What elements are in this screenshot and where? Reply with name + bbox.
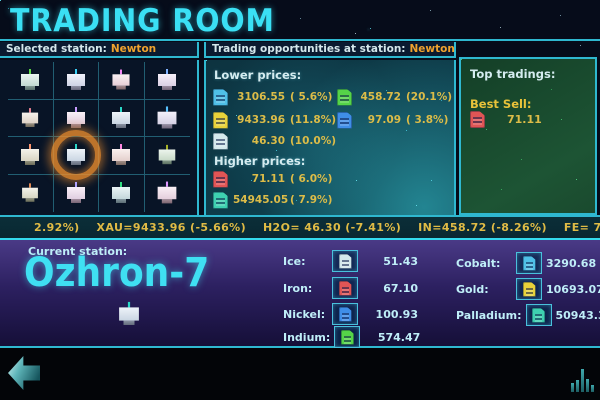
station-grid-cell-2[interactable] (54, 62, 100, 100)
commodity-value: 67.10 (362, 282, 418, 295)
chart-bar (591, 385, 594, 392)
opportunities-label: Trading opportunities at station: (212, 43, 406, 55)
commodity-label: Nickel: (283, 308, 328, 321)
page-title: TRADING ROOM (10, 0, 275, 40)
price-value: 46.30 (233, 135, 285, 147)
commodity-value: 100.93 (362, 308, 418, 321)
commodity-row-cobalt: Cobalt: 3290.68 (456, 252, 596, 274)
price-change: ( 5.6%) (290, 91, 332, 103)
price-change: ( 6.0%) (290, 173, 332, 185)
price-row-indium: 458.72 (20.1%) (337, 88, 452, 106)
station-sprite-icon (19, 183, 42, 204)
commodity-row-ice: Ice: 51.43 (283, 250, 418, 272)
commodity-icon-box (516, 252, 542, 274)
chart-bar (576, 380, 579, 392)
station-grid (8, 62, 190, 212)
indium-card-icon (337, 89, 352, 106)
current-station-panel: Current station: Ozhron-7 Ice: 51.43 Iro… (0, 238, 600, 348)
nickel-card-icon (339, 307, 352, 322)
price-value: 9433.96 (233, 114, 285, 126)
commodity-icon-box (332, 277, 358, 299)
station-grid-cell-12[interactable] (145, 137, 191, 175)
station-grid-cell-14[interactable] (54, 175, 100, 213)
green-speckles (461, 59, 462, 60)
station-grid-cell-13[interactable] (8, 175, 54, 213)
commodity-value: 51.43 (362, 255, 418, 268)
price-row-gold: 9433.96 (11.8%) (213, 111, 336, 129)
iron-card-icon (339, 281, 352, 296)
selected-station-name: Newton (111, 43, 156, 55)
commodity-row-palladium: Palladium: 50943.39 (456, 304, 600, 326)
bottom-bar (0, 348, 600, 400)
commodity-row-indium: Indium: 574.47 (283, 326, 420, 348)
price-change: ( 3.8%) (406, 114, 448, 126)
commodity-row-nickel: Nickel: 100.93 (283, 303, 418, 325)
station-grid-cell-8[interactable] (145, 100, 191, 138)
station-sprite-icon (17, 143, 43, 167)
commodity-row-gold: Gold: 10693.07 (456, 278, 600, 300)
palladium-card-icon (532, 308, 545, 323)
commodity-icon-box (332, 303, 358, 325)
ice-card-icon (339, 254, 352, 269)
gold-card-icon (213, 112, 228, 129)
cobalt-card-icon (523, 256, 536, 271)
iron-card-icon (213, 171, 228, 188)
commodity-label: Gold: (456, 283, 512, 296)
station-grid-cell-7[interactable] (99, 100, 145, 138)
station-grid-cell-11[interactable] (99, 137, 145, 175)
price-change: (20.1%) (406, 91, 452, 103)
commodity-row-iron: Iron: 67.10 (283, 277, 418, 299)
iron-card-icon (470, 111, 485, 128)
station-grid-cell-16[interactable] (145, 175, 191, 213)
price-value: 54945.05 (233, 194, 285, 206)
station-sprite-icon (154, 105, 181, 130)
station-sprite-icon (63, 68, 89, 92)
station-sprite-icon (154, 68, 180, 92)
commodity-icon-box (334, 326, 360, 348)
best-sell-row: 71.11 (470, 111, 542, 128)
commodity-label: Iron: (283, 282, 328, 295)
price-row-iron: 71.11 ( 6.0%) (213, 170, 332, 188)
ice-card-icon (213, 133, 228, 150)
price-change: (10.0%) (290, 135, 336, 147)
station-grid-cell-5[interactable] (8, 100, 54, 138)
commodity-label: Palladium: (456, 309, 522, 322)
station-sprite-icon (154, 181, 181, 206)
price-change: (11.8%) (290, 114, 336, 126)
indium-card-icon (341, 330, 354, 345)
chart-bar (571, 383, 574, 392)
ticker-text: 2.92%) XAU=9433.96 (-5.66%) H2O= 46.30 (… (34, 217, 600, 238)
chart-bar (586, 379, 589, 392)
top-tradings-panel: Top tradings: Best Sell: 71.11 (459, 57, 597, 215)
commodity-label: Indium: (283, 331, 330, 344)
gold-card-icon (523, 282, 536, 297)
station-grid-cell-4[interactable] (145, 62, 191, 100)
commodity-value: 574.47 (364, 331, 420, 344)
trading-room-screen: TRADING ROOM Selected station: Newton Tr… (0, 0, 600, 400)
top-tradings-label: Top tradings: (470, 67, 555, 81)
higher-prices-label: Higher prices: (214, 154, 305, 168)
commodity-icon-box (516, 278, 542, 300)
palladium-card-icon (213, 192, 228, 209)
station-sprite-icon (19, 107, 42, 129)
price-change: ( 7.9%) (290, 194, 332, 206)
station-sprite-icon (63, 181, 89, 205)
station-sprite-icon (108, 181, 134, 205)
price-row-nickel: 97.09 ( 3.8%) (337, 111, 448, 129)
market-ticker: 2.92%) XAU=9433.96 (-5.66%) H2O= 46.30 (… (0, 215, 600, 238)
opportunities-station-name: Newton (410, 43, 455, 55)
selected-station-label: Selected station: (6, 43, 107, 55)
station-sprite-icon (108, 143, 134, 167)
nebula-speckles (206, 60, 207, 61)
station-grid-cell-1[interactable] (8, 62, 54, 100)
price-value: 458.72 (357, 91, 401, 103)
cobalt-card-icon (213, 89, 228, 106)
price-row-palladium: 54945.05 ( 7.9%) (213, 191, 332, 209)
station-grid-cell-15[interactable] (99, 175, 145, 213)
price-row-ice: 46.30 (10.0%) (213, 132, 336, 150)
lower-prices-label: Lower prices: (214, 68, 301, 82)
chart-bar (581, 369, 584, 392)
commodity-icon-box (526, 304, 552, 326)
current-station-sprite-icon (115, 301, 144, 327)
commodity-label: Cobalt: (456, 257, 512, 270)
starfield-cyan (0, 0, 1, 1)
price-value: 3106.55 (233, 91, 285, 103)
nickel-card-icon (337, 112, 352, 129)
best-sell-label: Best Sell: (470, 97, 531, 111)
back-arrow-icon[interactable] (8, 356, 40, 390)
station-grid-cell-10-selected[interactable] (54, 137, 100, 175)
price-value: 97.09 (357, 114, 401, 126)
station-sprite-icon (63, 143, 89, 167)
opportunities-header: Trading opportunities at station: Newton (204, 42, 456, 58)
commodity-value: 50943.39 (556, 309, 600, 322)
station-grid-panel (0, 60, 199, 215)
station-sprite-icon (17, 68, 43, 92)
station-sprite-icon (108, 106, 134, 130)
station-sprite-icon (63, 106, 89, 130)
commodity-value: 10693.07 (546, 283, 600, 296)
bar-chart-icon[interactable] (571, 368, 594, 392)
price-row-cobalt: 3106.55 ( 5.6%) (213, 88, 332, 106)
opportunities-panel: Lower prices: 3106.55 ( 5.6%) 458.72 (20… (204, 60, 456, 215)
best-sell-price: 71.11 (507, 113, 542, 126)
current-station-name: Ozhron-7 (24, 250, 209, 296)
title-divider (0, 39, 600, 41)
commodity-icon-box (332, 250, 358, 272)
commodity-value: 3290.68 (546, 257, 596, 270)
station-grid-cell-9[interactable] (8, 137, 54, 175)
selected-station-header: Selected station: Newton (0, 42, 199, 58)
station-sprite-icon (109, 69, 134, 92)
station-sprite-icon (155, 144, 179, 166)
station-grid-cell-3[interactable] (99, 62, 145, 100)
commodity-label: Ice: (283, 255, 328, 268)
price-value: 71.11 (233, 173, 285, 185)
